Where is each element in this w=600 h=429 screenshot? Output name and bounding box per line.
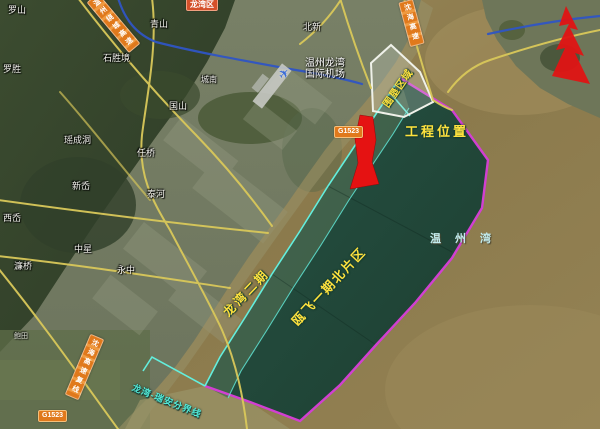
place-label-xiao: 西岙: [3, 213, 21, 223]
road-badge-g1523-upper: G1523: [334, 126, 363, 138]
annotation-project-location: 工程位置: [405, 121, 469, 140]
place-label-qingshan: 青山: [150, 19, 168, 29]
hill: [120, 71, 200, 119]
airport-name-line1: 温州龙湾: [293, 58, 357, 69]
place-label-beixin: 北新: [303, 22, 321, 32]
place-label-baotian: 鲍田: [14, 332, 28, 342]
airport-name: 温州龙湾 国际机场: [293, 58, 357, 80]
place-label-renqiao: 任桥: [137, 148, 155, 158]
district-badge: 龙湾区: [186, 0, 218, 11]
farmland: [0, 360, 120, 400]
place-label-luosheng: 罗胜: [3, 64, 21, 74]
place-label-yaochengdong: 瑶成洞: [64, 135, 91, 145]
place-label-guoshan: 国山: [169, 101, 187, 111]
place-label-zhongxing: 中星: [74, 244, 92, 254]
place-label-yongzhong: 永中: [117, 265, 135, 275]
place-label-lianqiao: 濂桥: [14, 261, 32, 271]
annotation-bay-name: 温州湾: [430, 230, 505, 246]
place-label-luoshan: 罗山: [8, 5, 26, 15]
place-label-taihe: 泰河: [147, 189, 165, 199]
place-label-xinao: 新岙: [72, 181, 90, 191]
place-label-chengnan: 城南: [201, 75, 217, 85]
satellite-map: 罗山 青山 北新 石胜境 城南 国山 罗胜 瑶成洞 任桥 泰河 新岙 西岙 中星…: [0, 0, 600, 429]
airport-name-line2: 国际机场: [293, 69, 357, 80]
place-label-shishengjing: 石胜境: [103, 53, 130, 63]
road-badge-g1523-lower: G1523: [38, 410, 67, 422]
